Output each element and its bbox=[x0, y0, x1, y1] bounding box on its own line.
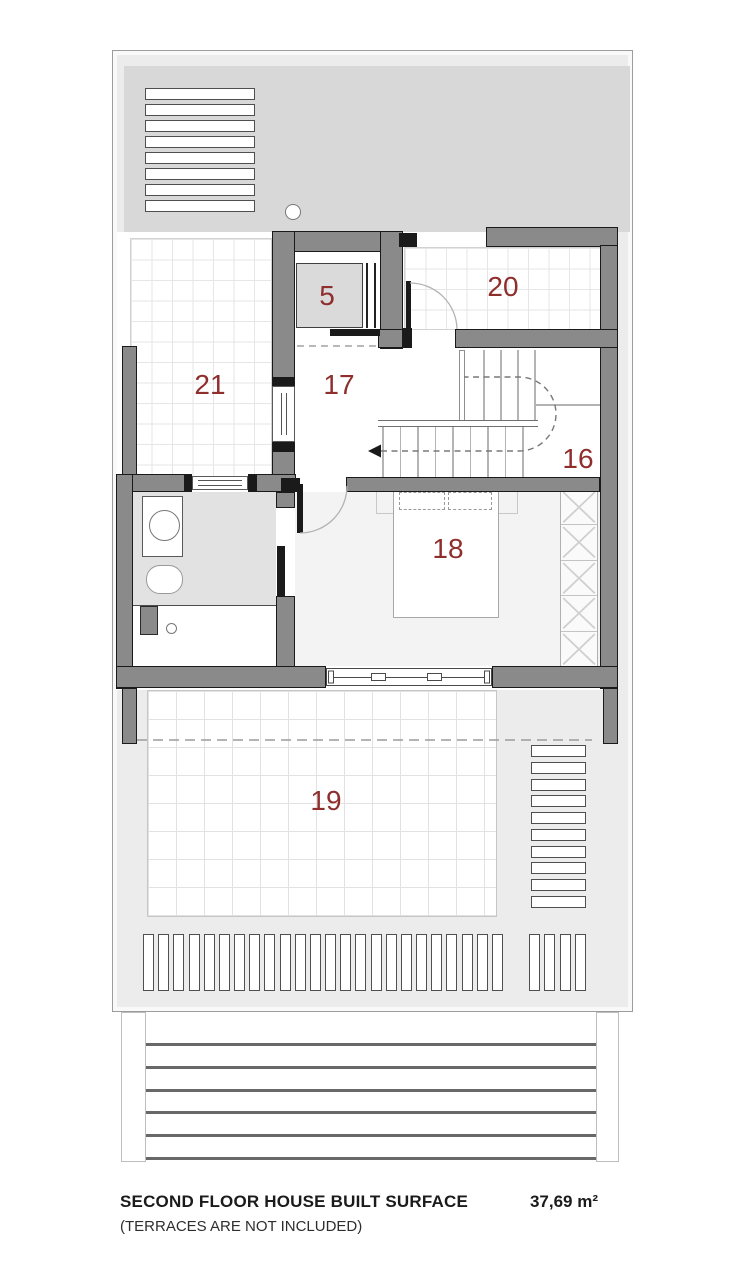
bedroom-bottom-wall bbox=[492, 666, 618, 688]
stair-tread bbox=[470, 427, 472, 478]
window-frame bbox=[281, 393, 287, 435]
stair-tread bbox=[522, 427, 524, 478]
room-label-20: 20 bbox=[487, 271, 518, 303]
toilet bbox=[146, 565, 183, 594]
railing-line bbox=[146, 1157, 596, 1160]
pergola-slat bbox=[143, 934, 154, 991]
wardrobe-cell bbox=[561, 596, 597, 631]
railing-line bbox=[146, 1043, 596, 1046]
louver-slat bbox=[531, 896, 586, 908]
room-label-16: 16 bbox=[562, 443, 593, 475]
wardrobe-x-icon bbox=[561, 596, 597, 630]
pergola-slat bbox=[529, 934, 540, 991]
stair-landing-line bbox=[536, 404, 600, 406]
bedroom-door-leaf bbox=[297, 484, 303, 533]
stair-tread bbox=[500, 350, 502, 422]
window-21-17 bbox=[272, 386, 295, 442]
pergola-slat bbox=[310, 934, 321, 991]
floor-plan-canvas: 5202117161819 SECOND FLOOR HOUSE BUILT S… bbox=[0, 0, 741, 1280]
wardrobe-x-icon bbox=[561, 632, 597, 666]
elevator-threshold bbox=[330, 329, 380, 336]
room20-top-wall bbox=[486, 227, 618, 247]
terrace19-right-stub bbox=[603, 688, 618, 744]
pergola-slat bbox=[325, 934, 336, 991]
window-cap bbox=[272, 442, 295, 451]
pergola-slats-right bbox=[529, 934, 586, 991]
sliding-terrace-door bbox=[326, 668, 492, 686]
wardrobe-x-icon bbox=[561, 490, 597, 524]
louver-slat bbox=[145, 152, 255, 164]
stair-tread bbox=[483, 350, 485, 422]
room-label-17: 17 bbox=[323, 369, 354, 401]
pergola-slat bbox=[462, 934, 473, 991]
pergola-slat bbox=[158, 934, 169, 991]
pergola-slat bbox=[264, 934, 275, 991]
railing-line bbox=[146, 1134, 596, 1137]
elevator-left-wall bbox=[272, 231, 295, 385]
terrace-louver-column bbox=[531, 745, 586, 908]
pergola-slat bbox=[544, 934, 555, 991]
bath-left-wall bbox=[116, 474, 133, 689]
right-post bbox=[596, 1012, 619, 1162]
footer: SECOND FLOOR HOUSE BUILT SURFACE 37,69 m… bbox=[120, 1192, 598, 1235]
bed-pillow bbox=[399, 492, 445, 510]
window-cap bbox=[248, 474, 256, 492]
stair-tread bbox=[452, 427, 454, 478]
left-post bbox=[121, 1012, 146, 1162]
railing-line bbox=[146, 1111, 596, 1114]
bath-door-leaf bbox=[277, 546, 285, 596]
pergola-slat bbox=[219, 934, 230, 991]
window-cap bbox=[184, 474, 192, 492]
pergola-slat bbox=[234, 934, 245, 991]
louver-slat bbox=[145, 168, 255, 180]
elevator-door-rails bbox=[366, 263, 376, 328]
terrace19-left-stub bbox=[122, 688, 137, 744]
stair-stringer-left bbox=[459, 350, 465, 423]
louver-slat bbox=[531, 879, 586, 891]
louver-slat bbox=[531, 862, 586, 874]
pergola-slat bbox=[446, 934, 457, 991]
stair-tread bbox=[382, 427, 384, 478]
pergola-slat bbox=[477, 934, 488, 991]
bath-bottom-wall bbox=[116, 666, 326, 688]
sink-basin bbox=[149, 510, 180, 541]
roof-vent-circle bbox=[285, 204, 301, 220]
pergola-slat bbox=[560, 934, 571, 991]
pergola-slats-left bbox=[143, 934, 503, 991]
louver-slat bbox=[531, 779, 586, 791]
wardrobe-cell bbox=[561, 490, 597, 525]
pergola-slat bbox=[575, 934, 586, 991]
stair-mid-stringer bbox=[378, 420, 538, 427]
wardrobe-cell bbox=[561, 632, 597, 666]
wardrobe-cell bbox=[561, 561, 597, 596]
room-label-5: 5 bbox=[319, 280, 335, 312]
louver-slat bbox=[145, 104, 255, 116]
stair-tread bbox=[517, 350, 519, 422]
plan-subtitle: (TERRACES ARE NOT INCLUDED) bbox=[120, 1218, 598, 1235]
louver-slat bbox=[531, 745, 586, 757]
window-frame bbox=[198, 480, 242, 486]
terrace21-left-wall bbox=[122, 346, 137, 479]
wardrobe bbox=[560, 489, 598, 667]
louver-slat bbox=[531, 795, 586, 807]
terrace-21-tiles bbox=[130, 238, 272, 478]
sliding-door-track bbox=[330, 677, 488, 678]
stair-tread bbox=[505, 427, 507, 478]
stairs-top-wall bbox=[455, 329, 618, 348]
louver-slat bbox=[531, 846, 586, 858]
stair-tread bbox=[435, 427, 437, 478]
louver-slat bbox=[531, 812, 586, 824]
wardrobe-x-icon bbox=[561, 525, 597, 559]
louver-slat bbox=[531, 829, 586, 841]
sliding-door-cap bbox=[484, 671, 490, 684]
pergola-slat bbox=[189, 934, 200, 991]
stair-tread bbox=[400, 427, 402, 478]
louver-slat bbox=[145, 120, 255, 132]
louver-slat bbox=[145, 88, 255, 100]
built-surface-value: 37,69 m² bbox=[530, 1192, 598, 1212]
louver-slat bbox=[145, 136, 255, 148]
shower-drain bbox=[166, 623, 177, 634]
pergola-slat bbox=[280, 934, 291, 991]
room-label-19: 19 bbox=[310, 785, 341, 817]
stair-tread bbox=[534, 350, 536, 422]
pergola-slat bbox=[386, 934, 397, 991]
pergola-slat bbox=[340, 934, 351, 991]
pergola-slat bbox=[371, 934, 382, 991]
bed-pillow bbox=[448, 492, 492, 510]
room-label-21: 21 bbox=[194, 369, 225, 401]
pergola-slat bbox=[416, 934, 427, 991]
bath-bed-wall-a bbox=[276, 492, 295, 508]
louver-slat bbox=[145, 184, 255, 196]
roof-louver-panel bbox=[145, 88, 255, 212]
plan-title: SECOND FLOOR HOUSE BUILT SURFACE bbox=[120, 1192, 468, 1212]
wall-stub-top bbox=[399, 233, 417, 247]
wardrobe-x-icon bbox=[561, 561, 597, 595]
pergola-slat bbox=[492, 934, 503, 991]
wardrobe-cell bbox=[561, 525, 597, 560]
bedroom-top-wall bbox=[346, 477, 600, 492]
shower-niche bbox=[140, 606, 158, 635]
stair-tread bbox=[487, 427, 489, 478]
sliding-door-handle bbox=[371, 673, 386, 681]
room20-door-leaf bbox=[406, 281, 411, 330]
pergola-slat bbox=[295, 934, 306, 991]
bath-bed-wall-b bbox=[276, 596, 295, 667]
bath-window bbox=[192, 476, 248, 490]
railing-line bbox=[146, 1089, 596, 1092]
pergola-slat bbox=[204, 934, 215, 991]
sliding-door-cap bbox=[328, 671, 334, 684]
pergola-slat bbox=[431, 934, 442, 991]
room-label-18: 18 bbox=[432, 533, 463, 565]
railing-line bbox=[146, 1066, 596, 1069]
pergola-slat bbox=[401, 934, 412, 991]
room20-door-stub bbox=[402, 328, 412, 348]
louver-slat bbox=[145, 200, 255, 212]
right-exterior-wall bbox=[600, 245, 618, 689]
sliding-door-handle bbox=[427, 673, 442, 681]
stair-tread bbox=[417, 427, 419, 478]
pergola-slat bbox=[355, 934, 366, 991]
pergola-slat bbox=[173, 934, 184, 991]
window-cap bbox=[272, 377, 295, 386]
louver-slat bbox=[531, 762, 586, 774]
pergola-slat bbox=[249, 934, 260, 991]
